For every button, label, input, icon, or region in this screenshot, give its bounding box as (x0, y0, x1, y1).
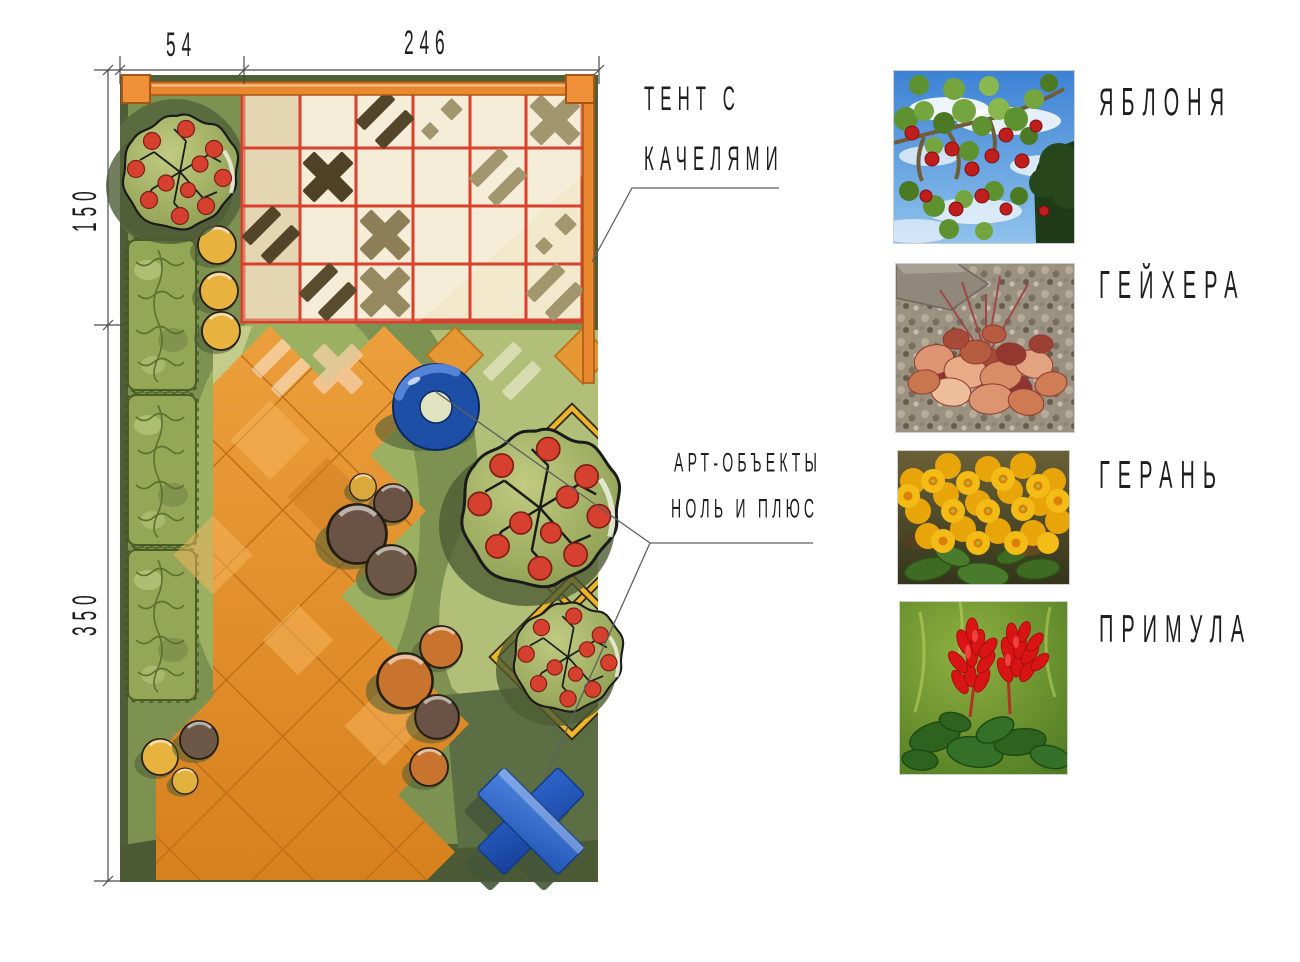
annotation-art-line1: АРТ-ОБЪЕКТЫ (674, 449, 821, 480)
tent-canopy-grid (241, 80, 594, 331)
primula-photo (899, 601, 1068, 775)
annotation-tent-line1: ТЕНТ С (644, 80, 741, 120)
pergola-post (122, 75, 150, 103)
dimension-label-54: 54 (166, 26, 197, 66)
legend-label-apple: ЯБЛОНЯ (1099, 80, 1232, 125)
legend-label-geranium: ГЕРАНЬ (1099, 453, 1224, 498)
dimension-label-246: 246 (404, 24, 450, 64)
landscape-plan-page: { "plan": { "dimensions": { "top_left": … (0, 0, 1300, 962)
annotation-art-line2: НОЛЬ И ПЛЮС (671, 495, 818, 526)
hedge-row (126, 238, 198, 702)
dimension-label-150: 150 (66, 186, 106, 232)
pergola-post (566, 75, 594, 103)
apple-tree-photo (893, 70, 1075, 244)
heuchera-photo (895, 263, 1075, 433)
legend-label-heuchera: ГЕЙХЕРА (1099, 263, 1245, 308)
annotation-tent-line2: КАЧЕЛЯМИ (644, 140, 784, 180)
leader-line-tent (592, 188, 779, 262)
dimension-label-350: 350 (66, 590, 106, 636)
geranium-photo (897, 450, 1070, 585)
legend-label-primula: ПРИМУЛА (1099, 607, 1252, 652)
